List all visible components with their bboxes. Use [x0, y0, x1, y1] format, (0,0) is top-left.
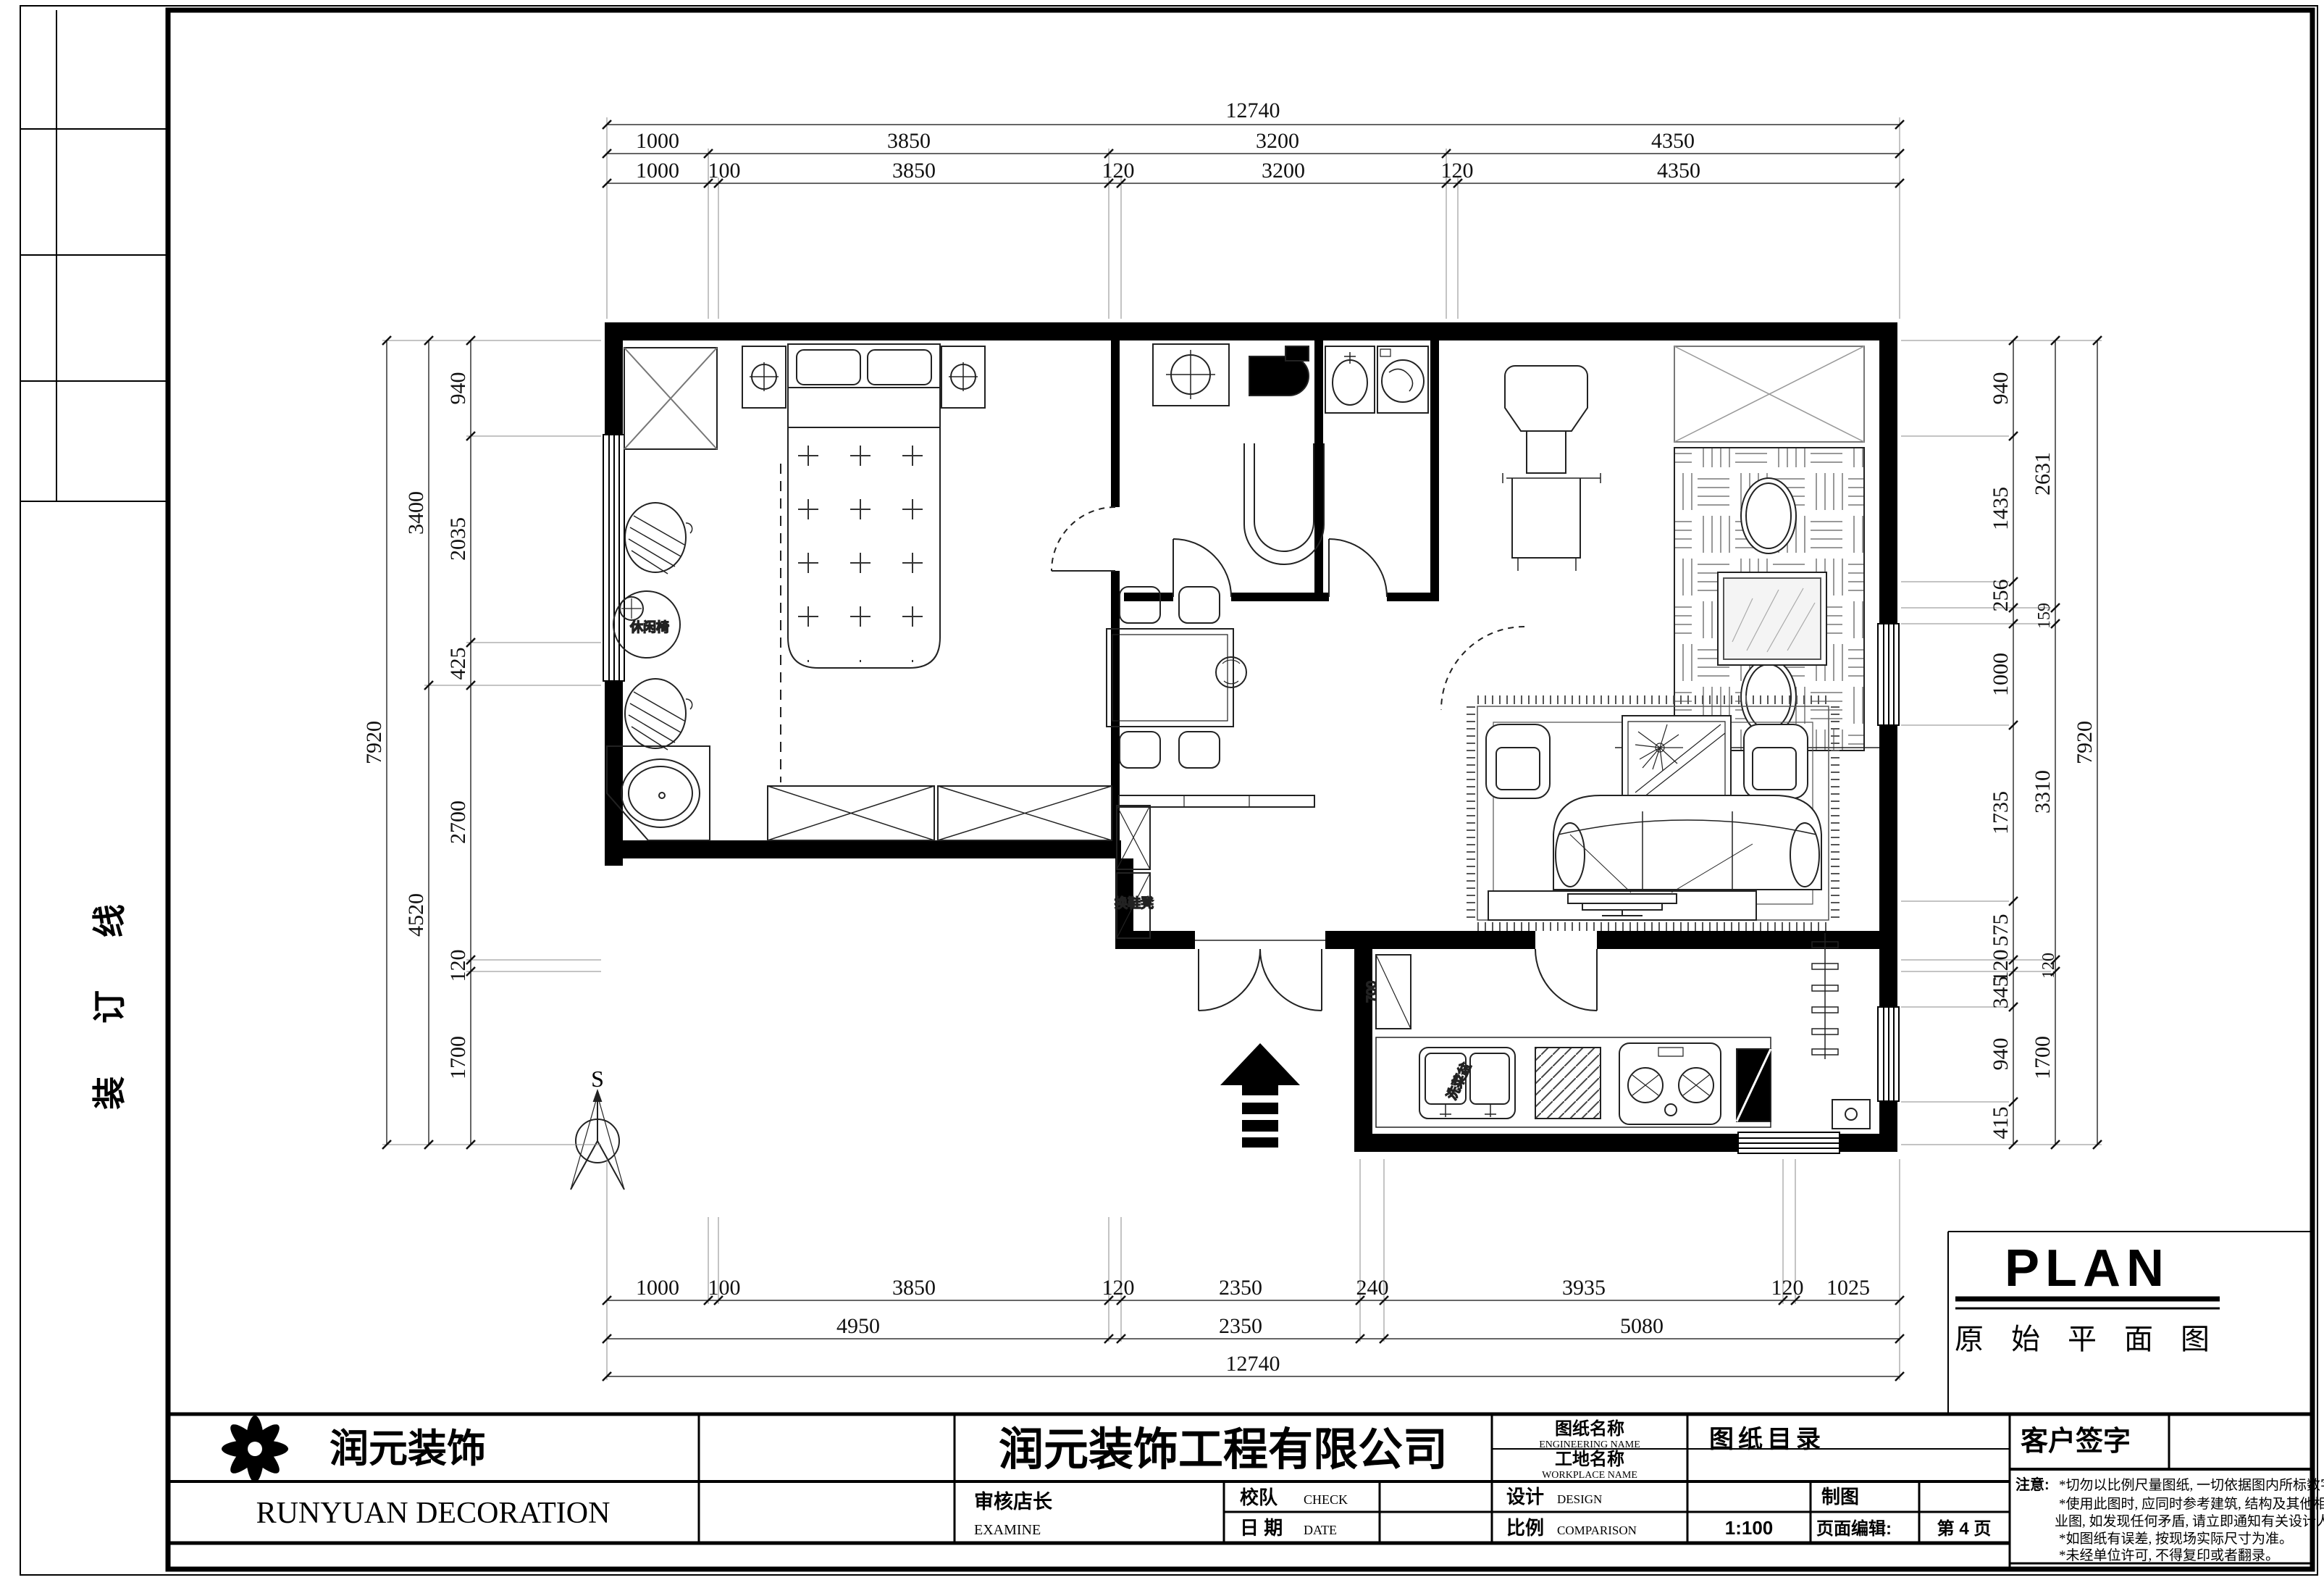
- compass-south-label: S: [591, 1066, 604, 1092]
- dim: 1700: [2031, 1036, 2055, 1079]
- note-line: *使用此图时, 应同时参考建筑, 结构及其他相关专: [2059, 1496, 2324, 1512]
- cutting-board: [1535, 1048, 1601, 1119]
- note-line: *切勿以比例尺量图纸, 一切依据图内所标数字为准。: [2059, 1477, 2324, 1493]
- dim: 1000: [636, 1276, 679, 1300]
- dim-right-overall: 7920: [2073, 721, 2097, 764]
- dim: 2350: [1219, 1276, 1262, 1300]
- drawing-name-en: ENGINEERING NAME: [1539, 1439, 1640, 1450]
- plan-title-en: PLAN: [2005, 1240, 2170, 1297]
- dim-top-overall: 12740: [1226, 99, 1280, 122]
- basin-unit: [1325, 346, 1375, 413]
- dim: 1435: [1989, 487, 2013, 530]
- dim: 1000: [1989, 653, 2013, 696]
- dim: 3400: [404, 491, 428, 535]
- toilet: [1249, 346, 1309, 396]
- binding-line-text: 装 订 线: [91, 882, 128, 1110]
- dim: 1735: [1989, 791, 2013, 835]
- dim: 3200: [1262, 159, 1305, 183]
- dining-area: [1107, 587, 1246, 768]
- dim: 2700: [446, 801, 470, 844]
- tatami-mat: [1674, 448, 1864, 751]
- dining-chairs: [1120, 587, 1220, 768]
- window-right-upper: [1878, 624, 1899, 725]
- dim: 2631: [2031, 452, 2055, 496]
- corner-unit: [1737, 1049, 1771, 1121]
- bathroom-2: [1325, 346, 1428, 413]
- dim: 575: [1989, 914, 2013, 947]
- signature-label: 客户签字: [2021, 1426, 2131, 1457]
- scale-value: 1:100: [1725, 1517, 1774, 1539]
- drawing-name-label: 图纸名称: [1555, 1418, 1624, 1439]
- dim: 120: [1102, 1276, 1135, 1300]
- dim: 120: [2039, 953, 2058, 979]
- armchair-right: [1744, 724, 1808, 798]
- dim: 415: [1989, 1107, 2013, 1140]
- scale-label: 比例: [1506, 1517, 1544, 1539]
- table-decor: [1216, 657, 1246, 687]
- examine-label: 审核店长: [974, 1490, 1053, 1513]
- wardrobe-top-left: [624, 348, 717, 449]
- window-right-lower: [1878, 1007, 1899, 1101]
- sink-label: 洗菜盆: [1444, 1061, 1474, 1102]
- dim: 940: [1989, 372, 2013, 405]
- dim: 256: [1989, 580, 2013, 612]
- design-en: DESIGN: [1557, 1492, 1602, 1506]
- company-short: 润元装饰: [330, 1427, 486, 1471]
- washing-machine: [1377, 346, 1428, 413]
- dim: 4520: [404, 893, 428, 937]
- dim: 1025: [1826, 1276, 1870, 1300]
- company-en: RUNYUAN DECORATION: [256, 1497, 611, 1530]
- window-left: [603, 435, 624, 681]
- dim-left-overall: 7920: [362, 721, 386, 764]
- notes-title: 注意:: [2015, 1476, 2050, 1493]
- dim: 120: [1771, 1276, 1804, 1300]
- entry-door: [1195, 940, 1325, 1011]
- compass-icon: [571, 1091, 624, 1190]
- dim: 4350: [1657, 159, 1700, 183]
- study-door: [1441, 627, 1524, 710]
- dining-table: [1107, 629, 1233, 727]
- coffee-table: [1622, 716, 1731, 803]
- radiator: [1812, 933, 1838, 1059]
- dim: 100: [708, 1276, 741, 1300]
- dim: 3850: [887, 129, 931, 153]
- page-value: 第 4 页: [1937, 1518, 1992, 1539]
- bathroom-1: [1153, 344, 1324, 564]
- leisure-chair-2: [625, 679, 692, 750]
- page-edit-label: 页面编辑:: [1816, 1518, 1892, 1539]
- dim: 1000: [636, 159, 679, 183]
- note-line: *如图纸有误差, 按现场实际尺寸为准。: [2059, 1531, 2293, 1547]
- note-line: *未经单位许可, 不得复印或者翻录。: [2059, 1547, 2279, 1563]
- dim: 1000: [636, 129, 679, 153]
- double-bed: [788, 344, 940, 668]
- company-logo: [222, 1416, 288, 1482]
- nightstand-left: [742, 346, 786, 408]
- window-bottom: [1738, 1132, 1840, 1153]
- armchair-left: [1486, 724, 1550, 798]
- dim: 240: [1356, 1276, 1389, 1300]
- dim: 940: [446, 372, 470, 405]
- plan-title-zh: 原 始 平 面 图: [1955, 1323, 2220, 1355]
- wardrobe-bottom-1: [768, 786, 934, 840]
- washbasin-counter: [1153, 344, 1229, 406]
- drawing-name-value: 图纸目录: [1709, 1426, 1825, 1453]
- dim-bottom-overall: 12740: [1226, 1352, 1280, 1376]
- dim: 345: [1989, 977, 2013, 1009]
- dim: 3850: [892, 1276, 936, 1300]
- dim: 4950: [836, 1314, 880, 1338]
- wardrobe-bottom-2: [938, 786, 1112, 840]
- check-label: 校队: [1240, 1487, 1278, 1508]
- dim: 3200: [1256, 129, 1299, 153]
- shower-tray: [1244, 443, 1324, 564]
- date-en: DATE: [1304, 1523, 1337, 1537]
- dim: 120: [446, 950, 470, 982]
- bedroom-door: [1052, 507, 1115, 571]
- cad-canvas: 装 订 线: [0, 0, 2324, 1580]
- dim: 1700: [446, 1036, 470, 1079]
- gas-stove: [1619, 1043, 1721, 1124]
- kitchen: 700 洗菜盆: [1364, 933, 1870, 1129]
- dim: 2350: [1219, 1314, 1262, 1338]
- study-cabinet: [1674, 346, 1864, 442]
- dim: 2035: [446, 517, 470, 561]
- nightstand-right: [941, 346, 985, 408]
- floor-drain: [1832, 1100, 1870, 1129]
- company-full: 润元装饰工程有限公司: [999, 1425, 1448, 1475]
- dim: 3935: [1562, 1276, 1606, 1300]
- kitchen-sink: [1419, 1048, 1515, 1119]
- scale-en: COMPARISON: [1557, 1523, 1637, 1537]
- bedroom: 休闲椅: [607, 344, 1112, 840]
- design-label: 设计: [1506, 1486, 1544, 1508]
- massage-chair: [1503, 366, 1601, 571]
- examine-en: EXAMINE: [974, 1522, 1041, 1538]
- dim: 159: [2035, 603, 2054, 629]
- living-room: [1471, 700, 1835, 927]
- site-name-label: 工地名称: [1555, 1449, 1624, 1469]
- dim: 4350: [1651, 129, 1695, 153]
- drawing-sheet: 装 订 线: [0, 0, 2324, 1580]
- dim: 120: [1441, 159, 1474, 183]
- entry-cabinet-700: [1376, 955, 1411, 1029]
- entry-arrow-icon: [1220, 1043, 1300, 1148]
- leisure-chair-label: 休闲椅: [630, 620, 669, 635]
- draft-label: 制图: [1821, 1486, 1859, 1508]
- dim: 425: [446, 648, 470, 680]
- plan-title-box: PLAN 原 始 平 面 图: [1948, 1232, 2312, 1414]
- note-line: 业图, 如发现任何矛盾, 请立即通知有关设计人员。: [2055, 1513, 2324, 1529]
- binding-cells: [20, 10, 168, 501]
- dim: 5080: [1620, 1314, 1664, 1338]
- dim: 3850: [892, 159, 936, 183]
- site-name-en: WORKPLACE NAME: [1542, 1470, 1637, 1481]
- bath-door-2: [1329, 539, 1387, 597]
- dim: 940: [1989, 1038, 2013, 1071]
- sofa: [1553, 795, 1821, 890]
- check-en: CHECK: [1304, 1492, 1348, 1507]
- dim: 100: [708, 159, 741, 183]
- kitchen-door: [1535, 949, 1597, 1011]
- shoe-stool-label: 换鞋凳: [1115, 896, 1154, 911]
- dim: 3310: [2031, 770, 2055, 814]
- entry: 换鞋凳: [1115, 795, 1314, 938]
- cabinet-depth-label: 700: [1364, 981, 1379, 1003]
- date-label: 日 期: [1240, 1517, 1283, 1539]
- dim: 120: [1102, 159, 1135, 183]
- leisure-chair-1: [625, 503, 692, 574]
